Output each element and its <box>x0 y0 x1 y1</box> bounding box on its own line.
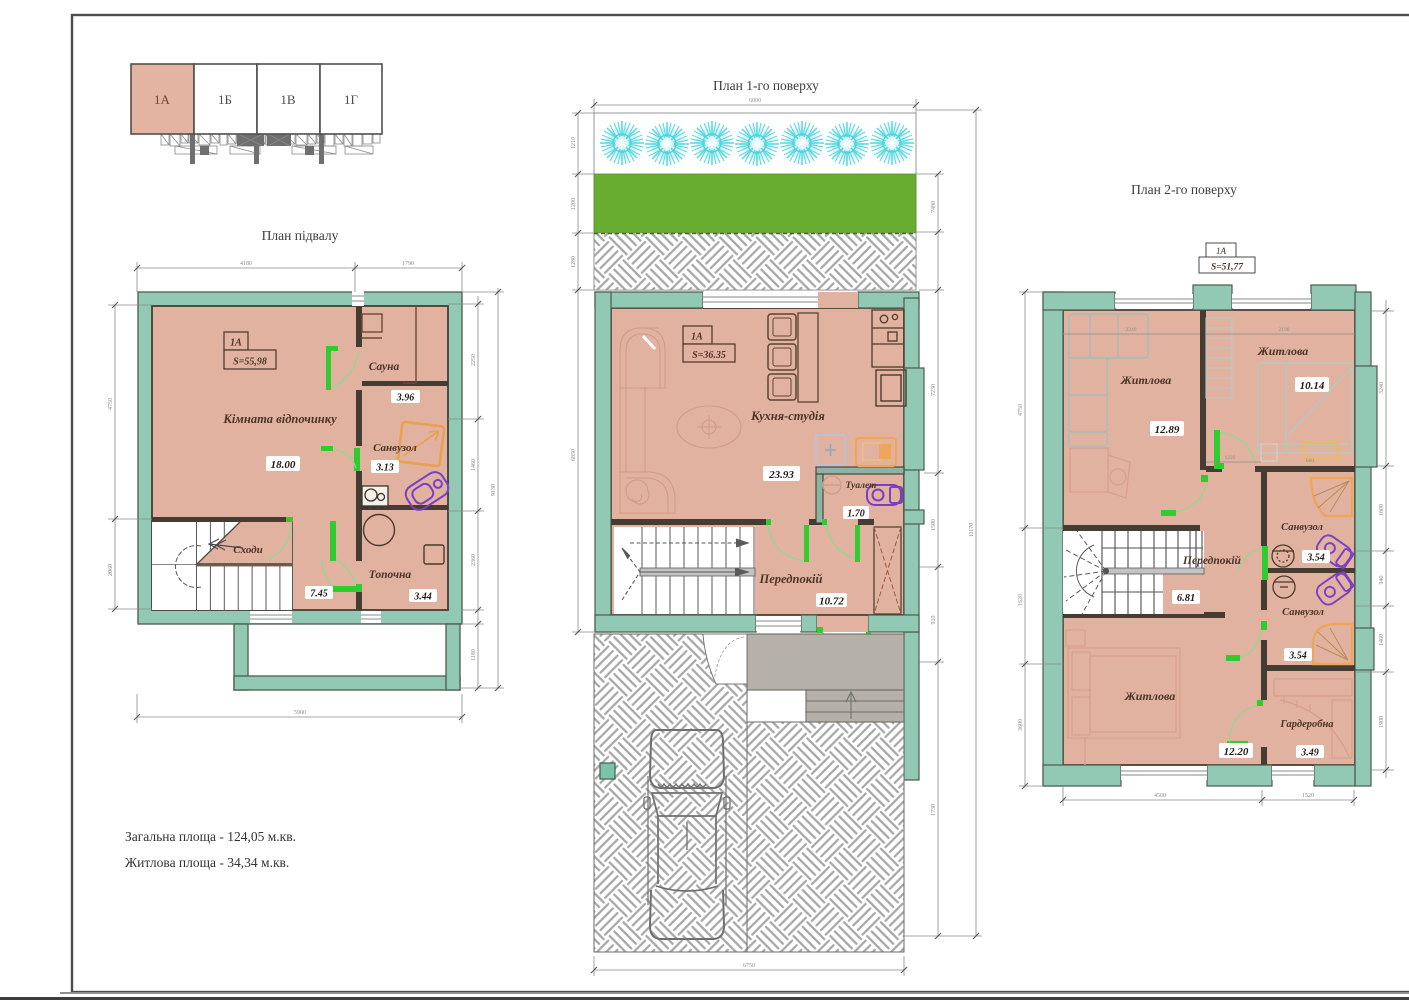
svg-text:Гардеробна: Гардеробна <box>1279 719 1333 730</box>
svg-text:1520: 1520 <box>1302 793 1314 799</box>
svg-text:6750: 6750 <box>743 963 755 969</box>
svg-text:3.49: 3.49 <box>1300 748 1319 759</box>
svg-text:S=36.35: S=36.35 <box>692 350 726 361</box>
svg-text:Передпокій: Передпокій <box>1182 554 1241 567</box>
svg-text:2240: 2240 <box>1126 327 1137 333</box>
svg-text:1А: 1А <box>691 332 703 343</box>
svg-text:1620: 1620 <box>1018 594 1024 606</box>
svg-text:1730: 1730 <box>931 804 937 816</box>
svg-text:6850: 6850 <box>571 449 577 461</box>
svg-text:18.00: 18.00 <box>271 459 296 471</box>
svg-text:Житлова: Житлова <box>1124 689 1175 703</box>
svg-text:План 2-го поверху: План 2-го поверху <box>1131 182 1237 197</box>
svg-text:600: 600 <box>1306 458 1315 464</box>
svg-text:Сходи: Сходи <box>233 544 263 556</box>
svg-text:1А: 1А <box>230 338 242 349</box>
svg-text:12.20: 12.20 <box>1224 746 1249 758</box>
svg-text:2060: 2060 <box>108 564 114 576</box>
svg-text:7230: 7230 <box>931 384 937 396</box>
svg-text:10.14: 10.14 <box>1300 380 1325 392</box>
svg-text:23.93: 23.93 <box>768 469 794 481</box>
svg-text:9130: 9130 <box>491 484 497 496</box>
svg-text:Туалет: Туалет <box>846 481 877 491</box>
svg-text:Передпокій: Передпокій <box>759 572 823 586</box>
svg-text:Загальна площа - 124,05 м.кв.: Загальна площа - 124,05 м.кв. <box>125 829 296 844</box>
svg-text:План 1-го поверху: План 1-го поверху <box>713 78 819 93</box>
svg-text:3.13: 3.13 <box>375 463 394 474</box>
svg-text:2190: 2190 <box>1279 327 1290 333</box>
svg-text:1Г: 1Г <box>344 92 359 107</box>
svg-text:11170: 11170 <box>969 523 975 538</box>
svg-text:6000: 6000 <box>749 98 761 104</box>
svg-text:1790: 1790 <box>402 261 414 267</box>
svg-text:S=51,77: S=51,77 <box>1211 263 1244 273</box>
svg-text:Житлова: Житлова <box>1257 344 1308 358</box>
svg-text:3.96: 3.96 <box>396 393 415 404</box>
svg-text:Топочна: Топочна <box>369 569 412 581</box>
svg-text:4750: 4750 <box>1018 404 1024 416</box>
svg-text:1.70: 1.70 <box>847 509 865 520</box>
svg-text:5900: 5900 <box>294 710 306 716</box>
svg-text:План підвалу: План підвалу <box>262 228 339 243</box>
svg-text:2360: 2360 <box>471 554 477 566</box>
svg-text:3.44: 3.44 <box>413 592 432 603</box>
svg-text:1220: 1220 <box>1225 455 1236 461</box>
svg-text:7.45: 7.45 <box>310 589 328 600</box>
svg-text:3.54: 3.54 <box>1306 553 1325 564</box>
svg-text:Житлова: Житлова <box>1120 373 1171 387</box>
svg-text:Санвузол: Санвузол <box>1282 607 1324 618</box>
svg-text:S=55,98: S=55,98 <box>233 357 267 368</box>
svg-text:Житлова площа - 34,34 м.кв.: Житлова площа - 34,34 м.кв. <box>125 855 289 870</box>
svg-text:Санвузол: Санвузол <box>1281 522 1323 533</box>
svg-text:3600: 3600 <box>1018 719 1024 731</box>
svg-text:1180: 1180 <box>471 649 477 661</box>
svg-text:Сауна: Сауна <box>369 361 400 373</box>
svg-text:910: 910 <box>931 616 937 625</box>
svg-text:4750: 4750 <box>108 398 114 410</box>
svg-text:3240: 3240 <box>1379 382 1385 394</box>
svg-text:1210: 1210 <box>571 137 577 149</box>
svg-text:1800: 1800 <box>1379 504 1385 516</box>
svg-text:1900: 1900 <box>1379 716 1385 728</box>
svg-text:1Б: 1Б <box>218 92 232 107</box>
svg-text:10.72: 10.72 <box>819 596 844 608</box>
svg-text:4500: 4500 <box>1154 793 1166 799</box>
svg-text:1460: 1460 <box>471 459 477 471</box>
svg-text:1В: 1В <box>280 92 296 107</box>
svg-text:Кухня-студія: Кухня-студія <box>750 409 825 423</box>
svg-text:Санвузол: Санвузол <box>373 442 417 454</box>
svg-text:1200: 1200 <box>571 198 577 210</box>
svg-text:1А: 1А <box>154 92 171 107</box>
svg-text:2250: 2250 <box>471 354 477 366</box>
svg-text:4180: 4180 <box>240 261 252 267</box>
svg-text:940: 940 <box>1379 576 1385 585</box>
svg-text:1А: 1А <box>1216 246 1227 256</box>
svg-text:12.89: 12.89 <box>1155 424 1180 436</box>
svg-text:6.81: 6.81 <box>1177 593 1195 604</box>
svg-text:7480: 7480 <box>931 201 937 213</box>
svg-text:3.54: 3.54 <box>1288 651 1307 662</box>
svg-text:1500: 1500 <box>931 519 937 531</box>
svg-text:1460: 1460 <box>1379 634 1385 646</box>
svg-text:1280: 1280 <box>571 256 577 268</box>
svg-text:Кімната відпочинку: Кімната відпочинку <box>222 412 337 426</box>
